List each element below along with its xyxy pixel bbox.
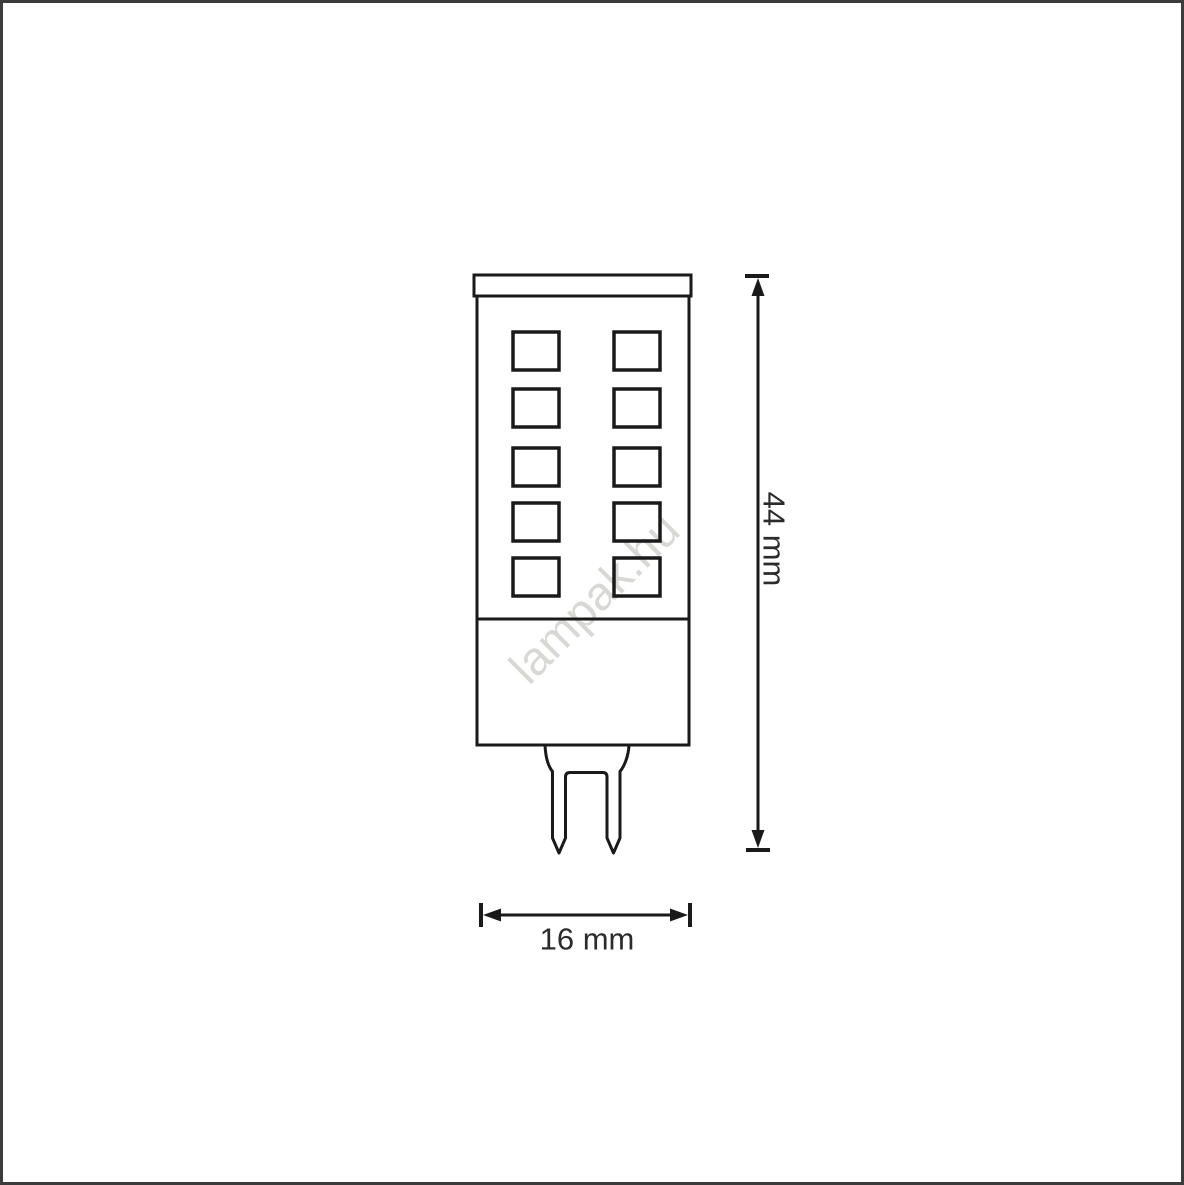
width-dimension-label: 16 mm [540,922,635,957]
bulb-cap [474,275,691,296]
height-dimension-label: 44 mm [757,492,792,587]
diagram-svg: lampak.hu 44 mm 16 mm [0,0,1184,1185]
bulb-dimension-diagram: lampak.hu 44 mm 16 mm [0,0,1184,1185]
